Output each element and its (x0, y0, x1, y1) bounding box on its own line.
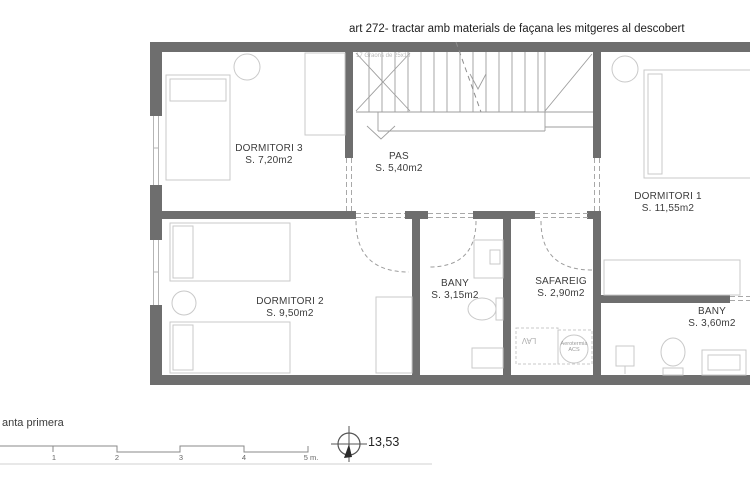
furniture-dormitori1 (604, 56, 750, 295)
room-label-bany-mid: BANY S. 3,15m2 (431, 278, 478, 301)
scale-tick-4: 4 (242, 453, 246, 462)
facade-note: art 272- tractar amb materials de façana… (349, 23, 685, 35)
north-compass-icon (331, 426, 367, 462)
room-label-dormitori2: DORMITORI 2 S. 9,50m2 (256, 296, 324, 319)
room-name: DORMITORI 2 (256, 296, 324, 307)
fixtures-bany-right (616, 338, 746, 375)
room-area: S. 2,90m2 (535, 288, 587, 300)
acs-line2: ACS (568, 347, 579, 353)
north-angle-value: 13,53 (368, 435, 399, 449)
scale-tick-2: 2 (115, 453, 119, 462)
room-name: BANY (441, 278, 469, 289)
room-label-dormitori3: DORMITORI 3 S. 7,20m2 (235, 143, 303, 166)
scale-tick-1: 1 (52, 453, 56, 462)
stairs (356, 52, 593, 139)
lav-label: LAV (522, 336, 537, 345)
room-area: S. 3,60m2 (688, 318, 735, 330)
scale-tick-3: 3 (179, 453, 183, 462)
room-name: SAFAREIG (535, 276, 587, 287)
scale-tick-5: 5 m. (304, 453, 319, 462)
room-area: S. 5,40m2 (375, 163, 422, 175)
room-label-bany-right: BANY S. 3,60m2 (688, 306, 735, 329)
room-area: S. 3,15m2 (431, 290, 478, 302)
fixtures-bany-mid (468, 240, 503, 368)
room-label-safareig: SAFAREIG S. 2,90m2 (535, 276, 587, 299)
room-name: DORMITORI 1 (634, 191, 702, 202)
stair-steps-note: 17 Graons de 25x18 (356, 53, 410, 59)
scale-bar (0, 446, 308, 452)
floorplan-page: art 272- tractar amb materials de façana… (0, 0, 750, 500)
aerotermia-acs-label: Aerotermia ACS (561, 341, 588, 353)
room-area: S. 7,20m2 (235, 155, 303, 167)
room-name: DORMITORI 3 (235, 143, 303, 154)
room-area: S. 9,50m2 (256, 308, 324, 320)
room-label-dormitori1: DORMITORI 1 S. 11,55m2 (634, 191, 702, 214)
floorplan-drawing (0, 0, 750, 500)
room-name: BANY (698, 306, 726, 317)
room-area: S. 11,55m2 (634, 203, 702, 215)
room-name: PAS (389, 151, 409, 162)
room-label-pas: PAS S. 5,40m2 (375, 151, 422, 174)
plan-title: anta primera (2, 417, 64, 429)
